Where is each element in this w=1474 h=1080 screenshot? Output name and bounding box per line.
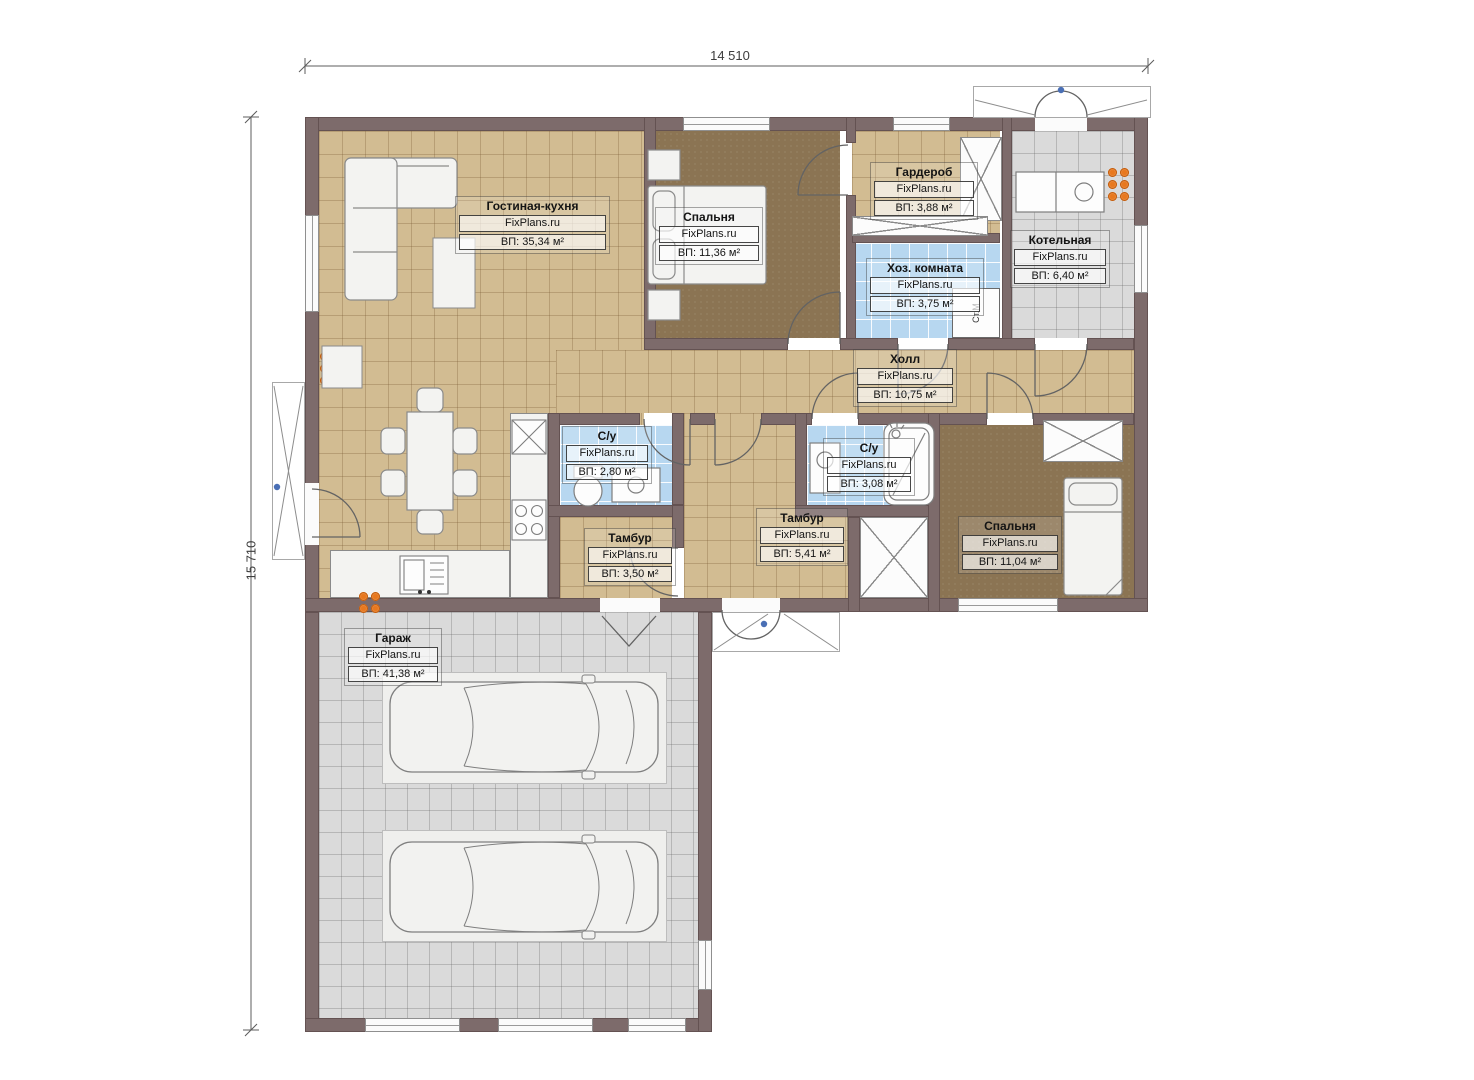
wall-segment <box>548 505 684 517</box>
room-label-bathroom-1: С/у FixPlans.ru ВП: 2,80 м² <box>562 426 652 484</box>
porch <box>272 382 305 560</box>
wall-segment <box>858 413 987 425</box>
room-area: ВП: 35,34 м² <box>459 234 606 250</box>
watermark: FixPlans.ru <box>566 445 648 461</box>
room-label-bedroom-2: Спальня FixPlans.ru ВП: 11,04 м² <box>958 516 1062 574</box>
room-area: ВП: 3,50 м² <box>588 566 672 582</box>
room-name: Гардероб <box>874 165 974 179</box>
window <box>893 117 950 131</box>
room-label-wardrobe: Гардероб FixPlans.ru ВП: 3,88 м² <box>870 162 978 220</box>
window <box>1134 225 1148 293</box>
radiator <box>320 352 341 385</box>
wall-segment <box>672 413 684 505</box>
room-name: Спальня <box>962 519 1058 533</box>
wall-segment <box>644 338 788 350</box>
door-opening <box>600 598 660 612</box>
room-area: ВП: 3,75 м² <box>870 296 980 312</box>
room-name: Хоз. комната <box>870 261 980 275</box>
room-area: ВП: 3,88 м² <box>874 200 974 216</box>
window <box>698 940 712 990</box>
porch <box>973 86 1151 118</box>
room-area: ВП: 41,38 м² <box>348 666 438 682</box>
wardrobe-cabinet <box>1043 420 1123 462</box>
wall-segment <box>1134 117 1148 612</box>
room-name: Гараж <box>348 631 438 645</box>
wall-segment <box>928 413 940 612</box>
garage-door <box>628 1018 686 1032</box>
watermark: FixPlans.ru <box>827 457 911 473</box>
room-label-hall: Холл FixPlans.ru ВП: 10,75 м² <box>853 349 957 407</box>
watermark: FixPlans.ru <box>870 277 980 293</box>
room-name: Холл <box>857 352 953 366</box>
room-name: Тамбур <box>760 511 844 525</box>
room-label-living-kitchen: Гостиная-кухня FixPlans.ru ВП: 35,34 м² <box>455 196 610 254</box>
wall-segment <box>948 338 1035 350</box>
watermark: FixPlans.ru <box>1014 249 1106 265</box>
room-label-vestibule-2: Тамбур FixPlans.ru ВП: 5,41 м² <box>756 508 848 566</box>
room-area: ВП: 3,08 м² <box>827 476 911 492</box>
dimension-width-label: 14 510 <box>690 48 770 63</box>
room-label-vestibule-1: Тамбур FixPlans.ru ВП: 3,50 м² <box>584 528 676 586</box>
watermark: FixPlans.ru <box>857 368 953 384</box>
room-label-garage: Гараж FixPlans.ru ВП: 41,38 м² <box>344 628 442 686</box>
wall-segment <box>548 413 640 425</box>
kitchen-counter <box>510 413 548 598</box>
room-area: ВП: 11,36 м² <box>659 245 759 261</box>
wall-segment <box>690 413 715 425</box>
parking-pad <box>382 830 667 942</box>
porch <box>712 612 840 652</box>
wall-segment <box>846 117 856 143</box>
watermark: FixPlans.ru <box>962 535 1058 551</box>
radiator <box>359 592 380 613</box>
watermark: FixPlans.ru <box>348 647 438 663</box>
door-opening <box>1035 117 1087 131</box>
radiator <box>1108 168 1129 201</box>
window <box>305 215 319 312</box>
room-label-boiler-room: Котельная FixPlans.ru ВП: 6,40 м² <box>1010 230 1110 288</box>
room-name: Гостиная-кухня <box>459 199 606 213</box>
wall-segment <box>305 612 319 1032</box>
door-opening <box>722 598 780 612</box>
parking-pad <box>382 672 667 784</box>
room-area: ВП: 2,80 м² <box>566 464 648 480</box>
room-label-utility-room: Хоз. комната FixPlans.ru ВП: 3,75 м² <box>866 258 984 316</box>
window <box>683 117 770 131</box>
room-area: ВП: 5,41 м² <box>760 546 844 562</box>
floor-plan-canvas: Ст.М <box>0 0 1474 1080</box>
watermark: FixPlans.ru <box>760 527 844 543</box>
window <box>958 598 1058 612</box>
wall-segment <box>848 517 860 612</box>
room-area: ВП: 11,04 м² <box>962 554 1058 570</box>
floor-hall <box>556 350 1134 413</box>
watermark: FixPlans.ru <box>459 215 606 231</box>
watermark: FixPlans.ru <box>659 226 759 242</box>
room-label-bedroom-1: Спальня FixPlans.ru ВП: 11,36 м² <box>655 207 763 265</box>
wall-segment <box>1087 338 1134 350</box>
watermark: FixPlans.ru <box>874 181 974 197</box>
room-name: Тамбур <box>588 531 672 545</box>
room-name: С/у <box>566 429 648 443</box>
dimension-height-label: 15 710 <box>244 521 259 601</box>
room-name: Спальня <box>659 210 759 224</box>
room-label-bathroom-2: С/у FixPlans.ru ВП: 3,08 м² <box>823 438 915 496</box>
room-name: С/у <box>827 441 911 455</box>
room-area: ВП: 10,75 м² <box>857 387 953 403</box>
room-name: Котельная <box>1014 233 1106 247</box>
wall-segment <box>795 413 807 517</box>
garage-door <box>498 1018 593 1032</box>
room-area: ВП: 6,40 м² <box>1014 268 1106 284</box>
door-opening <box>305 483 319 545</box>
garage-door <box>365 1018 460 1032</box>
floor-vestibule-2-upper <box>684 413 795 517</box>
kitchen-counter <box>330 550 510 598</box>
wardrobe-cabinet <box>860 517 928 598</box>
watermark: FixPlans.ru <box>588 547 672 563</box>
